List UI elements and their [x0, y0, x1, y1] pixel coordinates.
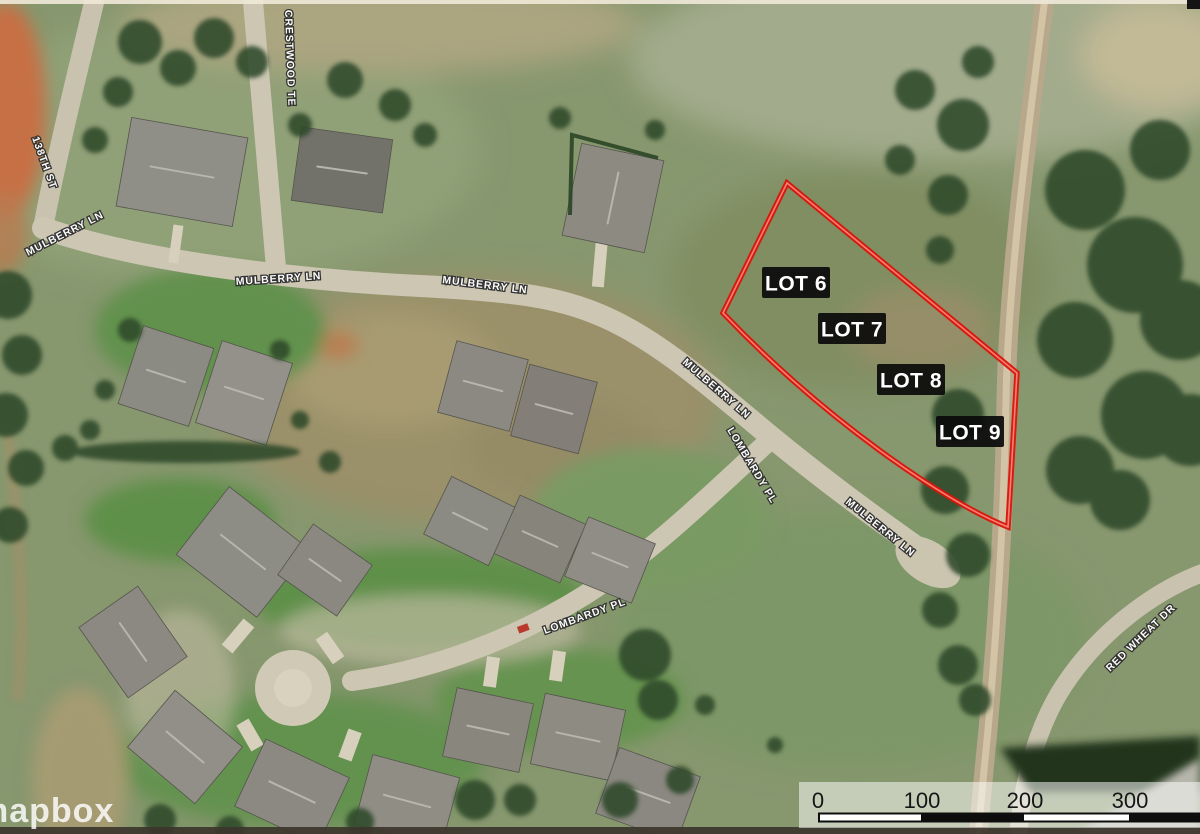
- svg-text:LOT 6: LOT 6: [765, 273, 827, 296]
- scale-tick-0: 0: [812, 788, 824, 813]
- svg-text:LOT 7: LOT 7: [821, 319, 883, 342]
- scale-tick-100: 100: [904, 788, 941, 813]
- lot-label-7: LOT 7: [818, 313, 886, 344]
- scale-tick-200: 200: [1007, 788, 1044, 813]
- scale-tick-300: 300: [1112, 788, 1149, 813]
- lot-label-9: LOT 9: [936, 416, 1004, 447]
- svg-text:LOT 8: LOT 8: [880, 370, 942, 393]
- mapbox-attribution: mapbox: [0, 792, 114, 830]
- satellite-map: CRESTWOOD TE 138TH ST MULBERRY LN MULBER…: [0, 0, 1200, 834]
- svg-text:LOT 9: LOT 9: [939, 422, 1001, 445]
- map-canvas: CRESTWOOD TE 138TH ST MULBERRY LN MULBER…: [0, 0, 1200, 834]
- scale-bar: 0 100 200 300: [799, 782, 1200, 828]
- lot-label-8: LOT 8: [877, 364, 945, 395]
- lot-label-6: LOT 6: [762, 267, 830, 298]
- black-mark-top-right: [1187, 0, 1200, 9]
